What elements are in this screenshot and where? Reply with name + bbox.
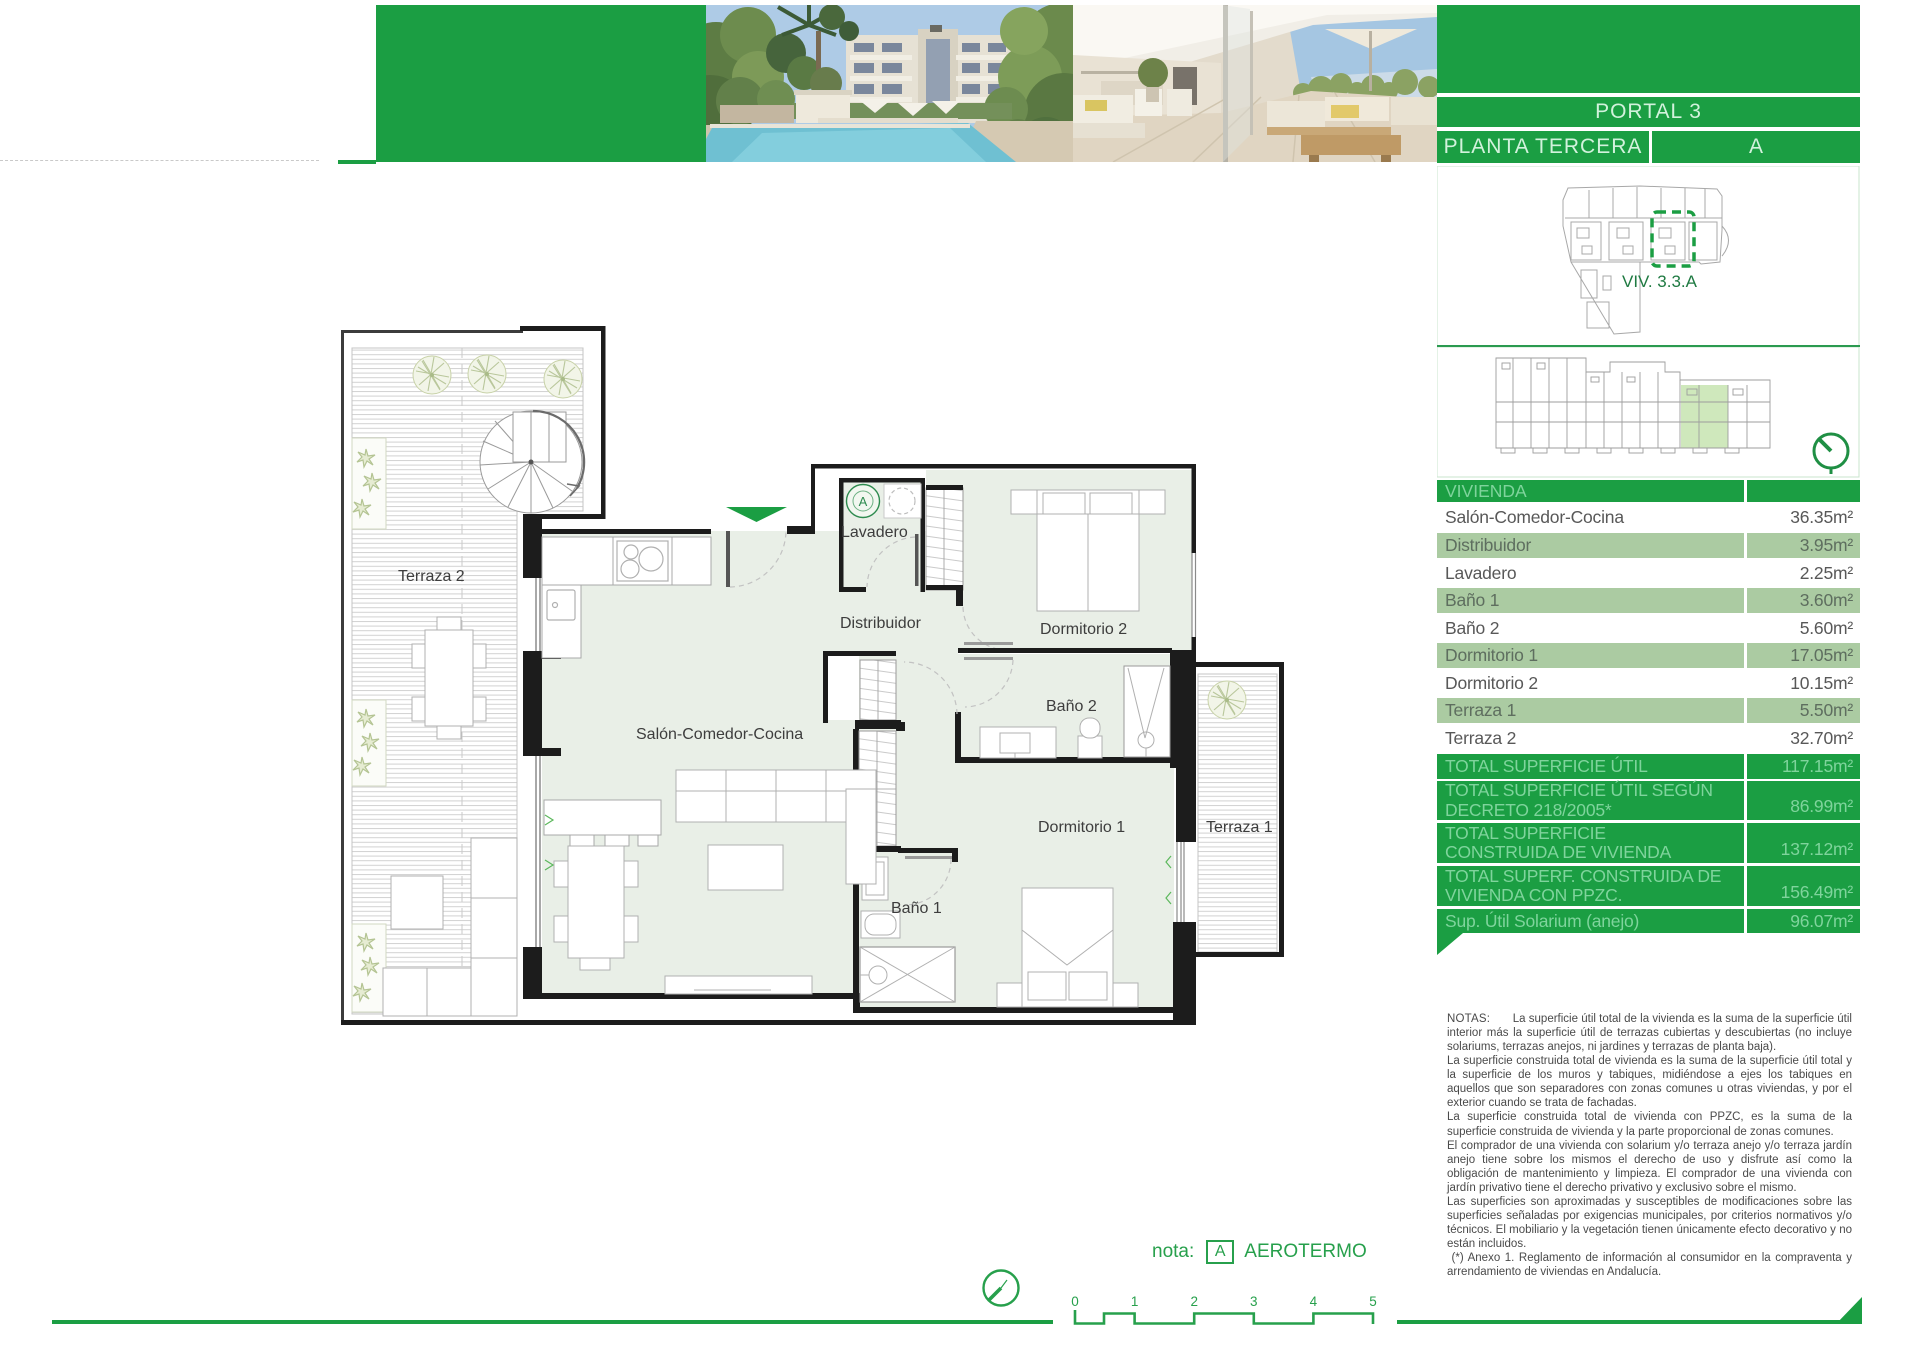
svg-text:4: 4: [1310, 1294, 1318, 1309]
svg-text:Distribuidor: Distribuidor: [840, 615, 922, 632]
svg-text:3: 3: [1250, 1294, 1258, 1309]
svg-text:5: 5: [1369, 1294, 1377, 1309]
svg-text:Dormitorio 1: Dormitorio 1: [1038, 819, 1125, 836]
svg-text:Baño 2: Baño 2: [1046, 698, 1097, 715]
svg-text:VIV. 3.3.A: VIV. 3.3.A: [1622, 272, 1698, 291]
svg-text:1: 1: [1131, 1294, 1139, 1309]
svg-text:Dormitorio 2: Dormitorio 2: [1040, 621, 1127, 638]
svg-text:Baño 1: Baño 1: [891, 900, 942, 917]
svg-text:Salón-Comedor-Cocina: Salón-Comedor-Cocina: [636, 726, 803, 743]
svg-text:0: 0: [1071, 1294, 1079, 1309]
svg-text:A: A: [859, 494, 868, 509]
svg-text:Lavadero: Lavadero: [841, 524, 908, 541]
svg-text:2: 2: [1190, 1294, 1198, 1309]
svg-text:Terraza 2: Terraza 2: [398, 568, 465, 585]
svg-text:Terraza 1: Terraza 1: [1206, 819, 1273, 836]
